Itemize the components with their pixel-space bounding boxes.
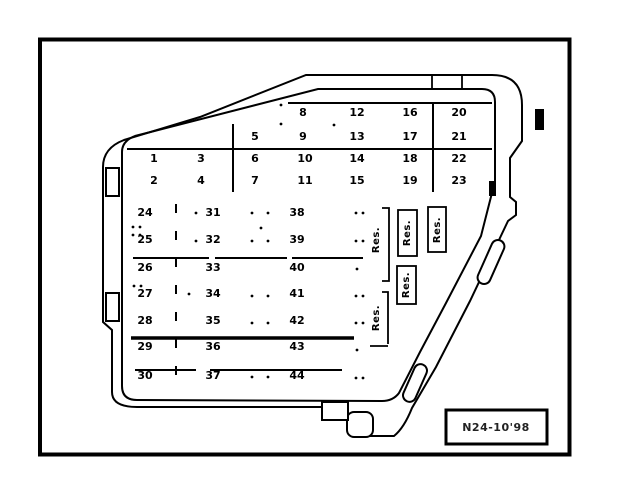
fuse-number: 16 — [402, 106, 418, 119]
fuse-box-diagram: 8 12 16 20 5 9 13 17 21 1 3 6 10 14 18 2… — [0, 0, 624, 478]
fuse-number: 10 — [297, 152, 313, 165]
fuse-number: 33 — [205, 261, 220, 274]
fuse-number: 6 — [251, 152, 259, 165]
fuse-number: 35 — [205, 314, 220, 327]
fuse-panel-figure: 8 12 16 20 5 9 13 17 21 1 3 6 10 14 18 2… — [0, 0, 624, 478]
fuse-number: 13 — [349, 130, 364, 143]
fuse-number: 20 — [451, 106, 467, 119]
fuse-number: 31 — [205, 206, 220, 219]
res-label: Res. — [371, 227, 382, 253]
fuse-number: 7 — [251, 174, 259, 187]
res-label: Res. — [401, 272, 412, 298]
fuse-number: 19 — [402, 174, 417, 187]
fuse-number: 1 — [150, 152, 158, 165]
fuse-number: 14 — [349, 152, 365, 165]
fuse-number: 43 — [289, 340, 304, 353]
housing-lug — [535, 109, 544, 130]
housing-lug — [489, 181, 496, 196]
caption-code: N24-10'98 — [462, 421, 530, 434]
fuse-number: 36 — [205, 340, 221, 353]
fuse-number: 29 — [137, 340, 152, 353]
fuse-number: 12 — [349, 106, 364, 119]
fuse-number: 21 — [451, 130, 466, 143]
fuse-number: 39 — [289, 233, 304, 246]
res-label: Res. — [432, 217, 443, 243]
fuse-number: 34 — [205, 287, 221, 300]
caption-box: N24-10'98 — [446, 410, 547, 444]
fuse-number: 32 — [205, 233, 220, 246]
fuse-number: 42 — [289, 314, 304, 327]
res-label: Res. — [371, 305, 382, 331]
fuse-number: 38 — [289, 206, 304, 219]
fuse-number: 5 — [251, 130, 259, 143]
fuse-number: 41 — [289, 287, 304, 300]
fuse-number: 3 — [197, 152, 205, 165]
fuse-number: 2 — [150, 174, 158, 187]
left-clip — [106, 168, 119, 196]
fuse-number: 11 — [297, 174, 312, 187]
fuse-number: 24 — [137, 206, 153, 219]
fuse-number: 22 — [451, 152, 466, 165]
fuse-number: 25 — [137, 233, 152, 246]
fuse-number: 30 — [137, 369, 153, 382]
fuse-number: 15 — [349, 174, 364, 187]
fuse-number: 27 — [137, 287, 152, 300]
bottom-tab — [322, 402, 348, 420]
fuse-number: 18 — [402, 152, 417, 165]
fuse-number: 4 — [197, 174, 205, 187]
fuse-number: 26 — [137, 261, 153, 274]
fuse-number: 37 — [205, 369, 220, 382]
left-clip — [106, 293, 119, 321]
fuse-number: 17 — [402, 130, 417, 143]
fuse-number: 9 — [299, 130, 307, 143]
fuse-number: 23 — [451, 174, 466, 187]
res-label: Res. — [402, 220, 413, 246]
fuse-number: 28 — [137, 314, 152, 327]
fuse-number: 8 — [299, 106, 307, 119]
fuse-number: 44 — [289, 369, 305, 382]
bottom-foot — [347, 412, 373, 437]
fuse-number: 40 — [289, 261, 305, 274]
